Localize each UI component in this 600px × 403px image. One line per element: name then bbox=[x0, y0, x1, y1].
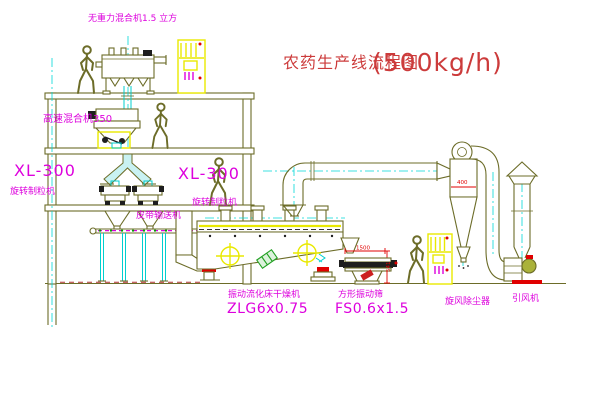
dim-sieve-length: 1500 bbox=[356, 246, 370, 252]
label-belt-conveyor: 皮带输送机 bbox=[136, 209, 181, 221]
fan-housing bbox=[504, 258, 522, 281]
duct-transition bbox=[437, 163, 450, 179]
exhaust-duct bbox=[280, 161, 450, 216]
dim-sieve-height: 541 bbox=[386, 262, 392, 273]
label-high-speed-mixer: 高速混合机350 bbox=[43, 112, 112, 125]
person-figure bbox=[78, 46, 94, 93]
belt-pulley bbox=[90, 228, 96, 234]
label-sieve-model: FS0.6x1.5 bbox=[335, 301, 409, 317]
cyclone-cone bbox=[450, 197, 477, 247]
dim-cyclone: 400 bbox=[457, 180, 468, 186]
label-granulator-center-name: 旋转制粒机 bbox=[192, 196, 237, 208]
gravity-free-mixer bbox=[96, 48, 166, 109]
fan-motor bbox=[522, 259, 536, 273]
label-dryer-name: 振动流化床干燥机 bbox=[228, 288, 300, 300]
control-cabinet-right bbox=[428, 234, 452, 284]
label-cyclone: 旋风除尘器 bbox=[445, 295, 490, 307]
stack-cap bbox=[507, 162, 537, 176]
label-granulator-left-model: XL-300 bbox=[14, 161, 76, 180]
rotary-granulator-right bbox=[132, 181, 164, 205]
floor-slab-2 bbox=[45, 148, 254, 154]
fluid-bed-dryer bbox=[197, 206, 359, 281]
spring-symbol bbox=[316, 254, 325, 262]
diagram-canvas: 无重力混合机1.5 立方 高速混合机350 XL-300 旋转制粒机 XL-30… bbox=[0, 0, 600, 403]
mixer-motor bbox=[143, 50, 152, 56]
control-cabinet-top bbox=[178, 40, 205, 93]
label-gravity-mixer: 无重力混合机1.5 立方 bbox=[88, 12, 177, 24]
induced-draft-fan bbox=[504, 255, 542, 284]
fan-base-red bbox=[512, 280, 542, 284]
label-sieve-name: 方形振动筛 bbox=[338, 288, 383, 300]
person-figure bbox=[408, 236, 424, 283]
cyclone-separator bbox=[450, 142, 477, 269]
y-chute bbox=[100, 154, 156, 185]
person-figure bbox=[152, 104, 167, 148]
label-dryer-model: ZLG6x0.75 bbox=[227, 301, 308, 317]
label-fan: 引风机 bbox=[512, 292, 539, 304]
conveyor-legs bbox=[98, 233, 168, 281]
indicator-dot bbox=[199, 77, 202, 80]
diagram-title-capacity: (500kg/h) bbox=[372, 48, 503, 77]
dryer-foot-red bbox=[317, 267, 329, 272]
cad-flow-diagram: 无重力混合机1.5 立方 高速混合机350 XL-300 旋转制粒机 XL-30… bbox=[0, 0, 600, 403]
rotary-granulator-left bbox=[99, 181, 131, 205]
indicator-dot bbox=[446, 269, 449, 272]
indicator-dot bbox=[446, 237, 449, 240]
label-granulator-center-model: XL-300 bbox=[178, 164, 240, 183]
label-granulator-left-name: 旋转制粒机 bbox=[10, 185, 55, 197]
cyclone-barrel bbox=[450, 159, 477, 197]
exhaust-stack bbox=[507, 162, 537, 258]
indicator-dot bbox=[199, 43, 202, 46]
